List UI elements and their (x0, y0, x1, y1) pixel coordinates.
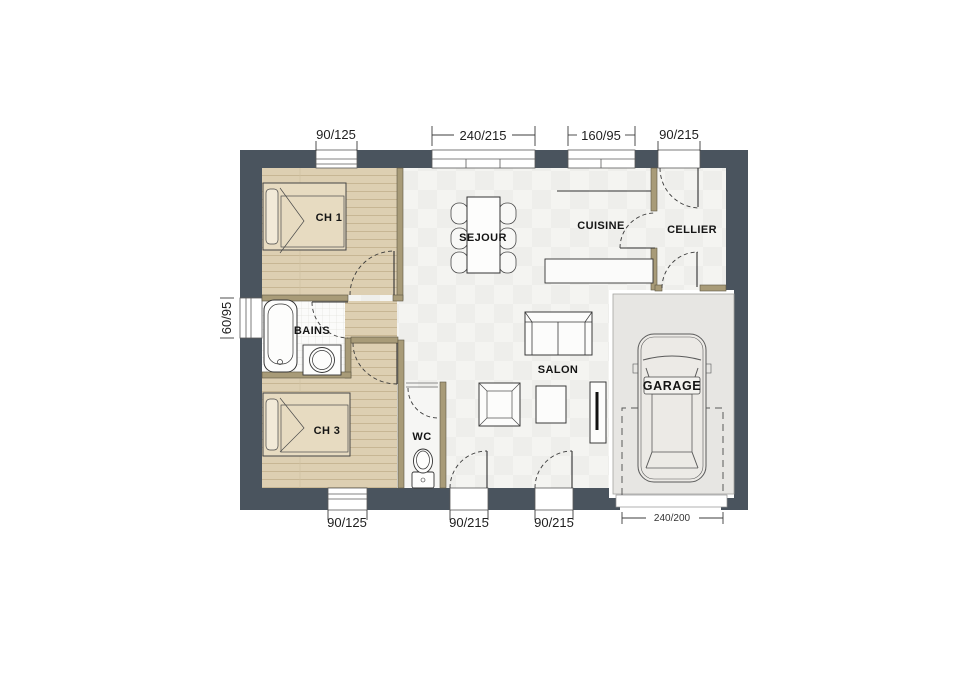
label-garage: GARAGE (643, 379, 701, 393)
floor-plan-page: CH 1 SEJOUR CUISINE CELLIER BAINS CH 3 W… (0, 0, 960, 678)
label-salon: SALON (538, 364, 579, 376)
label-bains: BAINS (294, 325, 330, 337)
sofa (525, 312, 592, 355)
partition-cellier-garage-right (700, 285, 726, 291)
label-cellier: CELLIER (667, 224, 717, 236)
garage-door (616, 495, 727, 507)
label-wc: WC (412, 431, 431, 443)
partition-cellier-garage-left (655, 285, 662, 291)
svg-text:90/125: 90/125 (327, 515, 367, 530)
car (633, 334, 711, 482)
tv-unit (590, 382, 606, 443)
window-sejour (432, 150, 535, 168)
floor-plan: CH 1 SEJOUR CUISINE CELLIER BAINS CH 3 W… (0, 0, 960, 678)
dim-top-cuisine: 160/95 (568, 126, 635, 146)
svg-text:90/215: 90/215 (534, 515, 574, 530)
svg-text:240/215: 240/215 (460, 128, 507, 143)
label-sejour: SEJOUR (459, 232, 507, 244)
dim-garage-door: 240/200 (622, 512, 723, 524)
armchair (479, 383, 520, 426)
label-cuisine: CUISINE (577, 220, 624, 232)
partition-ch1-door-stub (393, 295, 403, 301)
dim-bottom-door2: 90/215 (534, 510, 574, 530)
svg-text:60/95: 60/95 (219, 302, 234, 335)
bathtub (264, 300, 297, 372)
window-ch3 (328, 488, 367, 510)
partition-ch1-living (397, 168, 403, 300)
svg-text:90/215: 90/215 (659, 127, 699, 142)
partition-wc-living (440, 382, 446, 488)
partition-cuisine-cellier-top (651, 168, 657, 211)
svg-text:90/125: 90/125 (316, 127, 356, 142)
dim-bottom-ch3: 90/125 (327, 510, 367, 530)
window-cuisine (568, 150, 635, 168)
washbasin (303, 345, 341, 375)
dim-top-cellier: 90/215 (658, 127, 700, 151)
kitchen-counter-island (545, 259, 653, 283)
hall-floor (351, 301, 397, 340)
window-bains (240, 298, 262, 338)
window-ch1 (316, 150, 357, 168)
coffee-table (536, 386, 566, 423)
label-ch3: CH 3 (314, 425, 341, 437)
svg-text:90/215: 90/215 (449, 515, 489, 530)
partition-ch3-wc (398, 340, 404, 488)
dim-bottom-door1: 90/215 (449, 510, 489, 530)
partition-hall-ch3-header (351, 337, 398, 343)
dim-left-bains: 60/95 (219, 298, 234, 338)
dim-top-sejour: 240/215 (432, 126, 535, 146)
svg-text:240/200: 240/200 (654, 513, 691, 524)
label-ch1: CH 1 (316, 212, 343, 224)
garage-area (609, 290, 734, 507)
dim-top-ch1: 90/125 (316, 127, 357, 151)
toilet (412, 449, 434, 488)
svg-text:160/95: 160/95 (581, 128, 621, 143)
